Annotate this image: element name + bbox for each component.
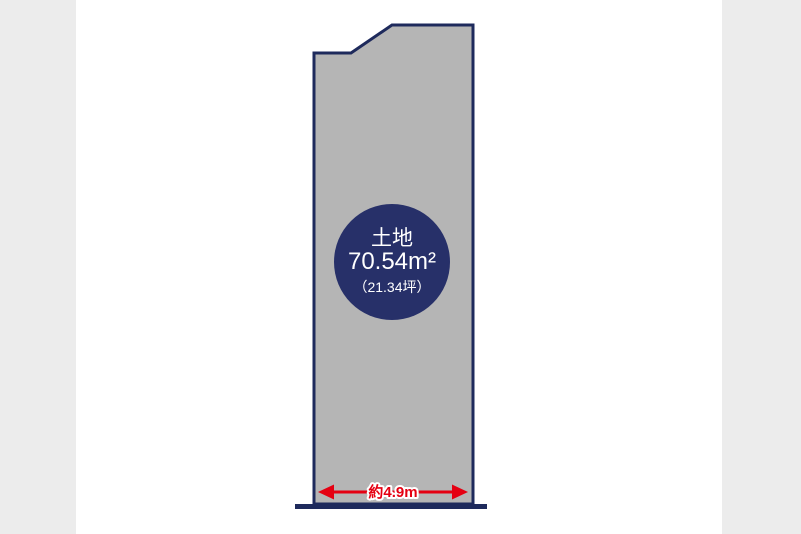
land-area-tsubo: （21.34坪） (353, 279, 430, 295)
land-type-label: 土地 (371, 227, 413, 250)
land-area-value: 70.54m² (348, 248, 436, 275)
frontage-label: 約4.9m (368, 483, 417, 501)
land-plot-diagram: 土地 70.54m² （21.34坪） 約4.9m (0, 0, 801, 534)
